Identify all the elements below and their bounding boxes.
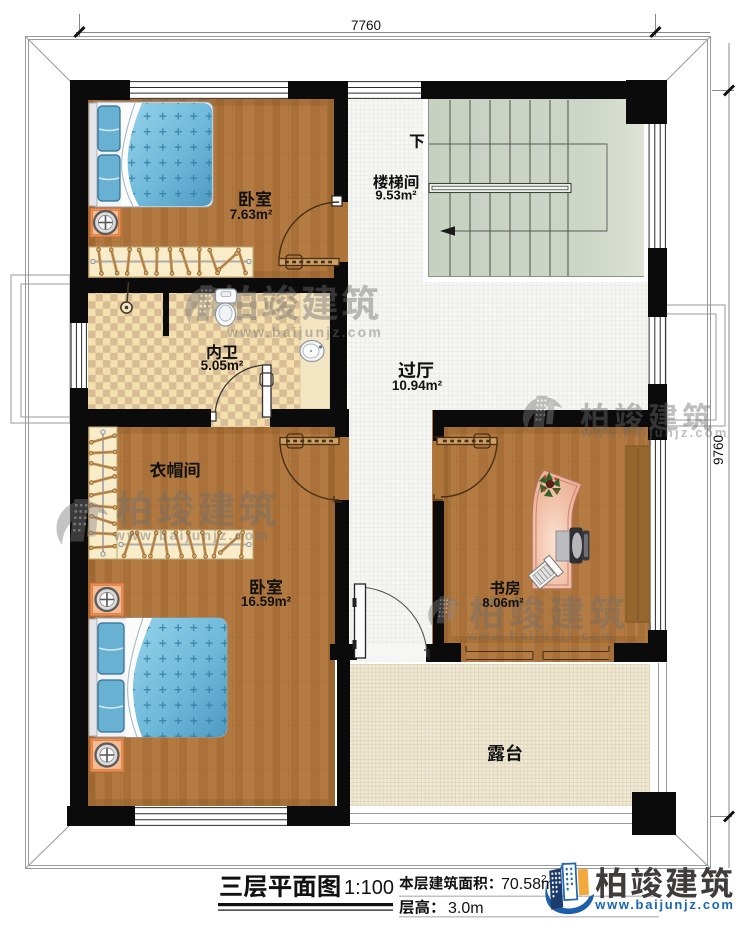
svg-text:7760: 7760: [351, 18, 381, 33]
svg-text:10.94m²: 10.94m²: [392, 378, 443, 393]
svg-text:3.0m: 3.0m: [448, 900, 484, 917]
svg-text:16.59m²: 16.59m²: [241, 594, 292, 609]
svg-text:www.baijunjz.com: www.baijunjz.com: [466, 628, 614, 643]
svg-text:www.baijunjz.com: www.baijunjz.com: [226, 324, 383, 340]
svg-text:2: 2: [541, 874, 547, 885]
svg-text:1:100: 1:100: [344, 877, 394, 899]
svg-text:9.53m²: 9.53m²: [375, 188, 417, 203]
svg-text:7.63m²: 7.63m²: [230, 207, 273, 222]
svg-text:8.06m²: 8.06m²: [482, 595, 524, 610]
svg-text:9760: 9760: [711, 435, 726, 465]
svg-text:5.05m²: 5.05m²: [201, 358, 244, 373]
svg-text:www.baijunjz.com: www.baijunjz.com: [594, 897, 734, 912]
svg-text:www.baijunjz.com: www.baijunjz.com: [113, 527, 270, 543]
svg-text:www.baijunjz.com: www.baijunjz.com: [580, 425, 728, 440]
